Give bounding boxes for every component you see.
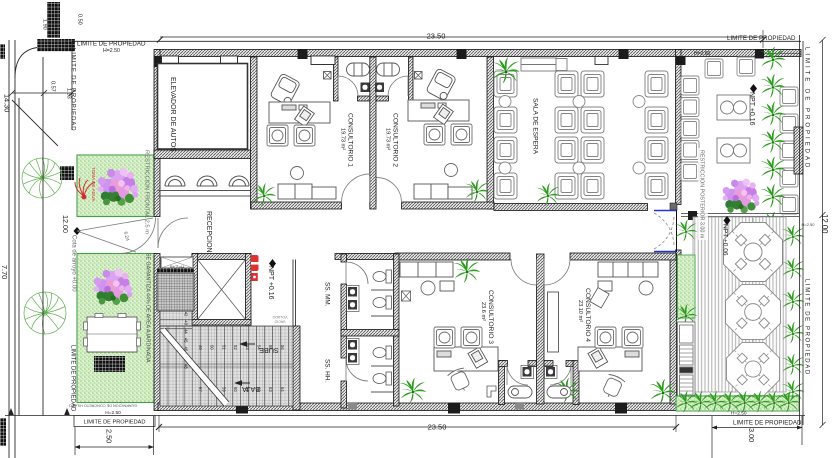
svg-text:44: 44	[184, 329, 189, 334]
svg-text:7.70: 7.70	[0, 265, 9, 279]
svg-text:53: 53	[245, 345, 250, 350]
svg-text:SE GARANTIZA 44% DE AREA AJARD: SE GARANTIZA 44% DE AREA AJARDINADA	[145, 253, 151, 363]
svg-text:SS. HH.: SS. HH.	[324, 359, 331, 382]
svg-text:52: 52	[233, 345, 238, 350]
svg-text:RESTRICCION FRONTAL 2.5 m: RESTRICCION FRONTAL 2.5 m	[144, 150, 150, 234]
svg-text:LIMITE DE PROPIEDAD: LIMITE DE PROPIEDAD	[804, 47, 810, 170]
svg-text:VACIO: VACIO	[274, 320, 285, 324]
svg-text:GUARNICION DE CONCRETO H/LADO: GUARNICION DE CONCRETO H/LADO	[69, 404, 138, 408]
svg-text:CONSULTORIO 4: CONSULTORIO 4	[584, 288, 591, 342]
svg-text:BAJA: BAJA	[242, 385, 260, 394]
svg-text:23.50: 23.50	[428, 423, 447, 432]
svg-text:ELEVADOR DE AUTOS: ELEVADOR DE AUTOS	[169, 77, 176, 152]
svg-text:49: 49	[198, 345, 203, 350]
svg-text:NPT +0.16: NPT +0.16	[748, 92, 755, 126]
svg-text:CONSULTORIO 1: CONSULTORIO 1	[347, 113, 354, 167]
svg-text:42: 42	[184, 312, 189, 317]
svg-text:SUBE: SUBE	[259, 346, 279, 355]
svg-text:60: 60	[233, 387, 238, 392]
svg-text:50: 50	[210, 345, 215, 350]
svg-text:LIMITE DE PROPIEDAD: LIMITE DE PROPIEDAD	[70, 345, 76, 412]
svg-text:14.30: 14.30	[3, 94, 12, 112]
svg-text:CONSULTORIO 3: CONSULTORIO 3	[487, 290, 494, 344]
svg-text:H=2.50: H=2.50	[105, 410, 121, 416]
svg-text:3.00: 3.00	[747, 428, 756, 442]
svg-text:19.73 m²: 19.73 m²	[385, 128, 391, 150]
svg-text:23.10 m²: 23.10 m²	[577, 300, 583, 322]
svg-text:LIMITE DE PROPIEDAD: LIMITE DE PROPIEDAD	[733, 420, 802, 427]
svg-text:SS. MM.: SS. MM.	[324, 282, 331, 307]
svg-text:23.6 m²: 23.6 m²	[480, 302, 486, 321]
svg-text:VOLADO: VOLADO	[272, 315, 287, 319]
svg-text:0.57: 0.57	[50, 81, 56, 92]
svg-text:48: 48	[184, 364, 189, 369]
svg-text:64: 64	[280, 387, 285, 392]
svg-text:H=2.50: H=2.50	[731, 411, 747, 417]
svg-text:Cota de arroyo +0.00: Cota de arroyo +0.00	[71, 235, 77, 292]
svg-text:SALA DE ESPERA: SALA DE ESPERA	[532, 98, 539, 155]
svg-text:RECEPCION: RECEPCION	[205, 211, 212, 253]
svg-text:43: 43	[184, 320, 189, 325]
svg-text:1.90: 1.90	[42, 19, 48, 30]
svg-text:59: 59	[221, 387, 226, 392]
svg-text:H=2.50: H=2.50	[802, 222, 816, 227]
svg-text:19.73 m²: 19.73 m²	[340, 128, 346, 150]
svg-text:12.00: 12.00	[61, 215, 70, 233]
svg-text:63: 63	[268, 387, 273, 392]
svg-text:23.50: 23.50	[427, 32, 446, 41]
svg-text:56: 56	[280, 345, 285, 350]
svg-text:TOMA DE AGUA: TOMA DE AGUA	[91, 167, 96, 203]
svg-text:LIMITE DE PROPIEDAD: LIMITE DE PROPIEDAD	[804, 279, 810, 376]
svg-text:H=2.60: H=2.60	[694, 51, 710, 57]
svg-text:57: 57	[198, 387, 203, 392]
svg-text:12.00: 12.00	[820, 214, 829, 234]
svg-text:LIMITE DE PROPIEDAD: LIMITE DE PROPIEDAD	[727, 35, 796, 42]
svg-text:NPT +0.06: NPT +0.06	[722, 224, 729, 256]
svg-text:45: 45	[184, 338, 189, 343]
svg-text:LIMITE DE PROPIEDAD: LIMITE DE PROPIEDAD	[84, 420, 146, 426]
svg-text:NPT +0.16: NPT +0.16	[267, 266, 274, 300]
svg-text:LIMITE DE PROPIEDAD: LIMITE DE PROPIEDAD	[77, 41, 146, 48]
svg-text:H=2.50: H=2.50	[103, 48, 120, 54]
svg-text:CONSULTORIO 2: CONSULTORIO 2	[392, 113, 399, 167]
svg-text:0.50: 0.50	[77, 14, 83, 25]
svg-text:RESTRICCION POSTERIOR 3.00 m: RESTRICCION POSTERIOR 3.00 m	[699, 150, 705, 239]
svg-text:51: 51	[221, 345, 226, 350]
svg-text:2.50: 2.50	[105, 429, 114, 443]
